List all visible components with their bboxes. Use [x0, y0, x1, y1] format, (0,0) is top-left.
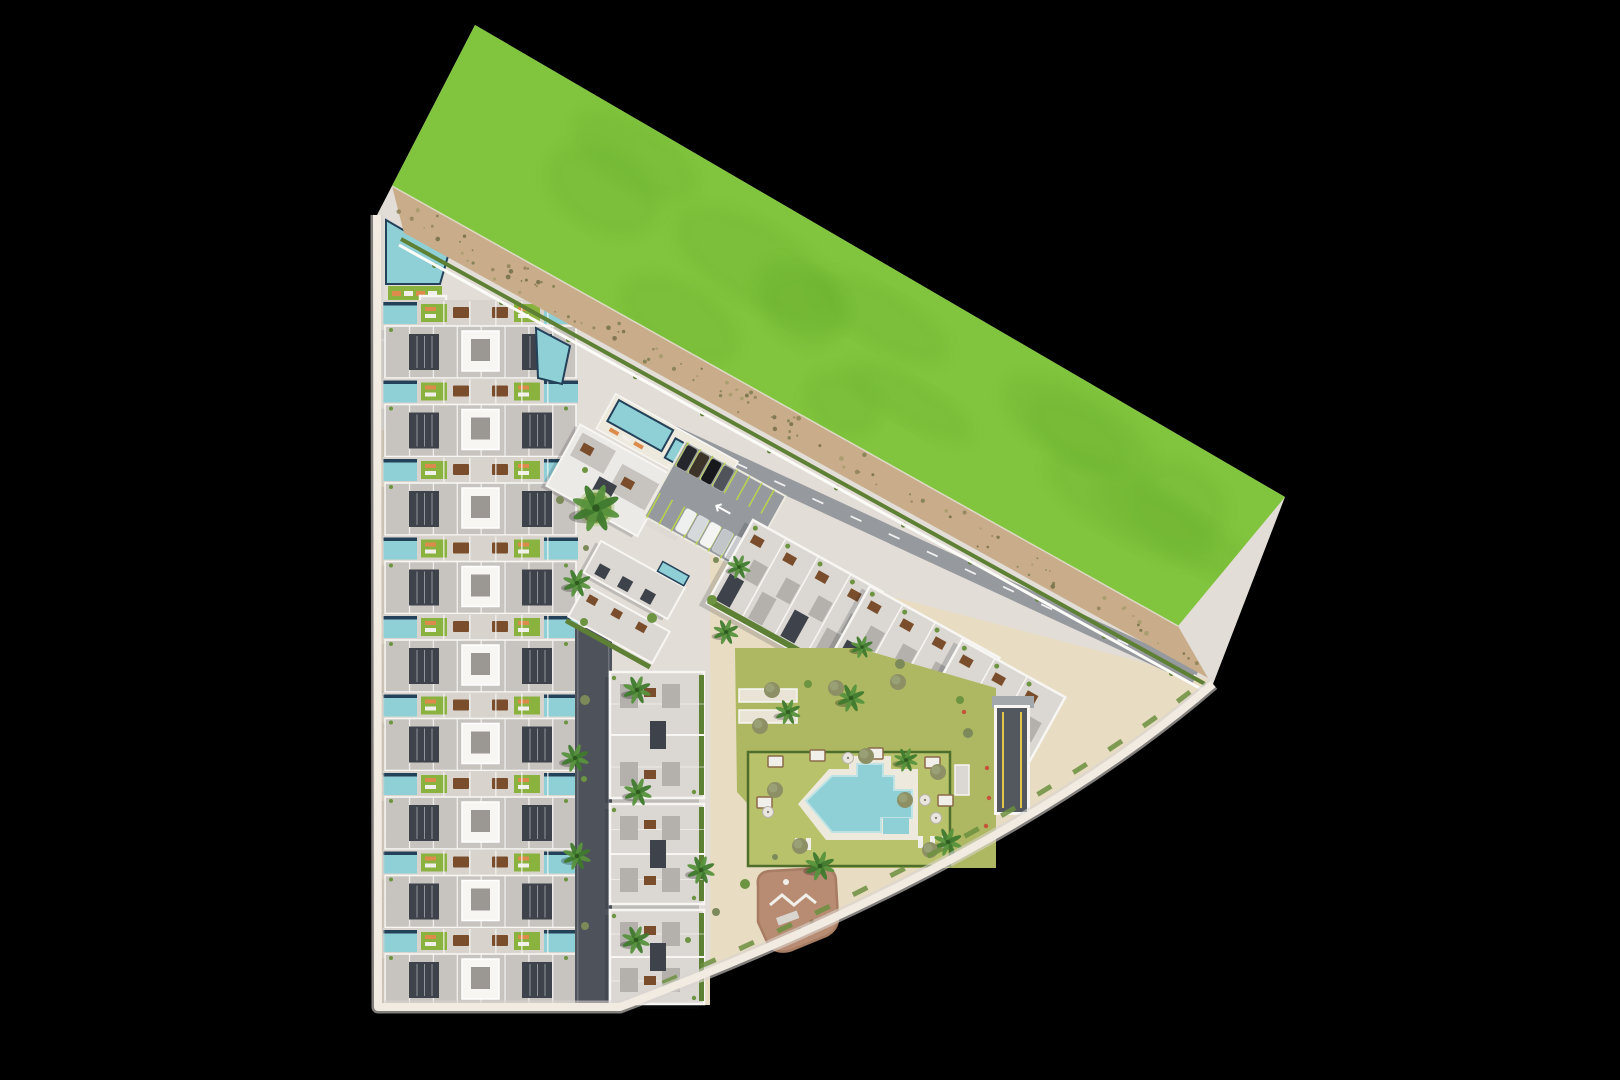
sun-lounger — [518, 393, 529, 397]
sun-lounger — [425, 864, 436, 868]
outdoor-table — [453, 700, 469, 711]
sun-lounger — [392, 291, 401, 296]
sun-lounger — [918, 836, 923, 848]
flower-bed — [987, 796, 991, 800]
sun-lounger — [425, 550, 436, 554]
roof-terrace — [620, 868, 638, 892]
sun-lounger — [518, 785, 529, 789]
flower-bed — [985, 766, 989, 770]
townhouse-row — [379, 928, 578, 1010]
roof-terrace — [662, 922, 680, 946]
sun-lounger — [425, 471, 436, 475]
stair-core — [650, 721, 666, 749]
sun-lounger — [518, 471, 529, 475]
sun-lounger — [425, 464, 436, 468]
outdoor-table — [492, 700, 508, 711]
townhouse-row — [379, 536, 578, 618]
garden-lawn — [514, 540, 540, 558]
shrub — [556, 496, 564, 504]
outdoor-table — [453, 386, 469, 397]
cabana-daybed — [810, 750, 825, 761]
outdoor-table — [644, 820, 656, 829]
shrub — [772, 854, 778, 860]
sun-lounger — [425, 543, 436, 547]
sun-lounger — [518, 621, 529, 625]
shrub — [707, 595, 717, 605]
outdoor-table — [492, 543, 508, 554]
shrub — [713, 557, 719, 563]
townhouse-row — [379, 614, 578, 696]
shrub — [580, 695, 590, 705]
sun-lounger — [425, 393, 436, 397]
shrub — [582, 467, 588, 473]
townhouse-row — [379, 379, 578, 461]
shrub — [685, 937, 691, 943]
shrub — [963, 728, 973, 738]
sun-lounger — [518, 935, 529, 939]
garden-lawn — [514, 697, 540, 715]
sun-lounger — [425, 307, 436, 311]
sun-lounger — [518, 464, 529, 468]
outdoor-table — [492, 621, 508, 632]
shrub — [647, 613, 657, 623]
roof-terrace — [662, 684, 680, 708]
townhouse-rows — [379, 300, 578, 1010]
sun-lounger — [425, 942, 436, 946]
garden-lawn — [514, 932, 540, 950]
apartment-block — [605, 672, 704, 803]
sun-lounger — [518, 778, 529, 782]
sun-lounger — [425, 935, 436, 939]
shrub — [581, 776, 587, 782]
outdoor-table — [453, 621, 469, 632]
outdoor-table — [644, 976, 656, 985]
site-plan-canvas — [0, 0, 1620, 1080]
spring-toy — [783, 879, 789, 885]
outdoor-table — [453, 464, 469, 475]
kids-pool — [883, 818, 909, 834]
shrub — [712, 908, 720, 916]
garage-ramp — [992, 696, 1034, 815]
cabana-daybed — [938, 795, 953, 806]
sun-lounger — [518, 942, 529, 946]
sun-lounger — [518, 700, 529, 704]
flower-bed — [962, 710, 966, 714]
sun-lounger — [518, 857, 529, 861]
townhouse-row — [379, 693, 578, 775]
roof-terrace — [662, 816, 680, 840]
outdoor-table — [492, 386, 508, 397]
sun-lounger — [404, 291, 413, 296]
shrub — [740, 879, 750, 889]
stair-core — [650, 943, 666, 971]
roof-terrace — [662, 868, 680, 892]
masterplan-render — [0, 0, 1620, 1080]
stair-core — [650, 840, 666, 868]
outdoor-table — [453, 543, 469, 554]
outdoor-table — [644, 876, 656, 885]
garden-lawn — [514, 383, 540, 401]
sun-lounger — [425, 778, 436, 782]
garden-lawn — [514, 854, 540, 872]
outdoor-table — [492, 778, 508, 789]
sun-lounger — [425, 628, 436, 632]
outdoor-table — [492, 464, 508, 475]
outdoor-table — [453, 778, 469, 789]
townhouse-row — [379, 771, 578, 853]
townhouse-row — [379, 850, 578, 932]
apartment-block — [605, 804, 704, 909]
townhouse-row — [379, 457, 578, 539]
sun-lounger — [518, 386, 529, 390]
shrub — [956, 696, 964, 704]
garden-lawn — [514, 618, 540, 636]
outdoor-table — [492, 307, 508, 318]
sun-lounger — [425, 707, 436, 711]
pergola — [955, 765, 969, 795]
garden-lawn — [514, 775, 540, 793]
shrub — [581, 922, 589, 930]
sun-lounger — [518, 550, 529, 554]
sun-lounger — [425, 386, 436, 390]
roof-terrace — [620, 968, 638, 992]
sun-lounger — [425, 700, 436, 704]
outdoor-table — [492, 857, 508, 868]
sun-lounger — [518, 628, 529, 632]
roof-terrace — [620, 816, 638, 840]
outdoor-table — [644, 770, 656, 779]
garden-lawn — [514, 461, 540, 479]
sun-lounger — [425, 785, 436, 789]
shrub — [895, 659, 905, 669]
sun-lounger — [518, 707, 529, 711]
sun-lounger — [518, 864, 529, 868]
shrub — [580, 618, 588, 626]
outdoor-table — [453, 935, 469, 946]
sun-lounger — [425, 314, 436, 318]
shrub — [804, 680, 812, 688]
sun-lounger — [425, 857, 436, 861]
garage-ramp-lane — [997, 708, 1027, 812]
outdoor-table — [453, 857, 469, 868]
outdoor-table — [453, 307, 469, 318]
cabana-daybed — [768, 756, 783, 767]
sun-lounger — [425, 621, 436, 625]
shrub — [583, 545, 589, 551]
flower-bed — [984, 824, 988, 828]
outdoor-table — [492, 935, 508, 946]
roof-terrace — [662, 762, 680, 786]
sun-lounger — [518, 543, 529, 547]
